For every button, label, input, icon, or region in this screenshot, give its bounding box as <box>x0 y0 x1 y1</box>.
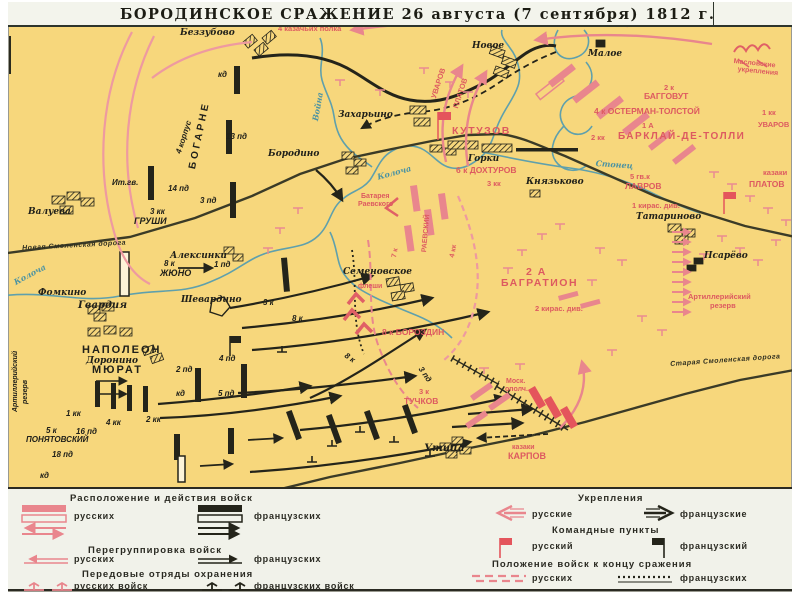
legend-label: французских войск <box>254 581 355 591</box>
map-label: 8 к <box>292 314 303 323</box>
map-label: 1 кк <box>762 109 776 117</box>
legend-label: русских <box>74 554 115 564</box>
title-bar: БОРОДИНСКОЕ СРАЖЕНИЕ 26 августа (7 сентя… <box>8 2 792 27</box>
map-label: Князьково <box>526 177 584 187</box>
legend-label: французские <box>680 509 747 519</box>
map-area: БеззубовоНовоеМалоеЗахарьиноБородиноВалу… <box>8 2 792 487</box>
map-label: 4 кк <box>449 244 458 258</box>
map-label: Малое <box>588 49 622 59</box>
map-label: Татариново <box>636 212 701 222</box>
map-label: 2 пд <box>176 365 193 374</box>
legend-label: русских <box>532 573 573 583</box>
map-label: ЖЮНО <box>160 268 191 278</box>
map-label: 3 пд <box>417 365 434 384</box>
title-divider <box>713 2 714 27</box>
map-label: 7 к <box>391 248 400 258</box>
french-fortification-symbol <box>640 503 680 523</box>
map-label: БАГГОВУТ <box>644 92 688 101</box>
map-label: 14 пд <box>168 184 189 193</box>
map-label: КАРПОВ <box>508 452 546 461</box>
legend-section-title: Укрепления <box>578 493 643 504</box>
french-end-position-symbol <box>616 573 674 585</box>
map-label: УВАРОВ <box>430 67 447 99</box>
map-label: 2 кк <box>591 134 605 142</box>
map-label: Захарьино <box>338 110 393 120</box>
legend: Расположение и действия войск русских фр… <box>8 487 792 591</box>
map-label: 18 пд <box>52 450 73 459</box>
russian-regroup-symbol <box>22 555 72 567</box>
legend-label: французских <box>680 573 747 583</box>
russian-command-post-symbol <box>498 536 516 560</box>
map-label: Раевского <box>358 201 393 208</box>
legend-section-title: Положение войск к концу сражения <box>492 559 692 570</box>
map-label: Фомкино <box>38 288 86 298</box>
map-label: Бородино <box>268 149 319 159</box>
russian-fortification-symbol <box>490 503 530 523</box>
map-label: кд <box>218 70 227 79</box>
map-labels-layer: БеззубовоНовоеМалоеЗахарьиноБородиноВалу… <box>8 2 792 487</box>
map-label: Гвардия <box>78 300 127 311</box>
map-label: 3 к <box>419 388 429 396</box>
map-label: ТУЧКОВ <box>404 397 438 406</box>
french-regroup-symbol <box>196 555 246 567</box>
map-label: Беззубово <box>180 28 235 38</box>
map-label: Утица <box>424 443 464 454</box>
map-label: Валуева <box>28 207 71 217</box>
map-label: ПОНЯТОВСКИЙ <box>26 435 88 444</box>
map-label: 8 к <box>164 259 175 268</box>
french-vanguard-symbol <box>200 580 256 594</box>
map-label: 3 к <box>263 298 274 307</box>
legend-section-title: Передовые отряды охранения <box>82 569 253 580</box>
legend-label: французских <box>254 511 321 521</box>
map-label: ГРУШИ <box>134 216 167 226</box>
map-label: 1 пд <box>214 260 231 269</box>
map-label: Артиллерийский <box>12 351 19 412</box>
map-label: кд <box>176 389 185 398</box>
map-label: 4 к ОСТЕРМАН-ТОЛСТОЙ <box>594 107 700 116</box>
french-command-post-symbol <box>650 536 668 560</box>
map-label: Колоча <box>12 262 47 287</box>
map-label: ЛАВРОВ <box>625 182 662 191</box>
russian-end-position-symbol <box>470 573 528 585</box>
map-label: 1 кк <box>66 409 81 418</box>
map-label: 2 кк <box>146 415 161 424</box>
map-label: 8 к БОРОЗДИН <box>382 328 444 337</box>
map-label: Семеновское <box>343 267 412 277</box>
map-label: флеши <box>358 283 382 290</box>
map-label: Колоча <box>376 163 412 182</box>
map-label: Артиллерийский <box>688 293 751 301</box>
map-label: 3 пд <box>200 196 217 205</box>
map-label: 4 кк <box>106 418 121 427</box>
map-label: резерв <box>22 380 29 404</box>
map-label: Псарёво <box>704 251 748 261</box>
legend-label: русские <box>532 509 573 519</box>
legend-label: русских <box>74 511 115 521</box>
map-label: Война <box>310 92 325 122</box>
map-label: резерв <box>710 302 736 310</box>
map-label: казаки <box>512 444 535 451</box>
map-label: 13 пд <box>226 132 247 141</box>
map-label: ПЛАТОВ <box>452 77 469 109</box>
map-label: 5 к <box>46 426 57 435</box>
map-label: ополч. <box>505 386 528 393</box>
map-label: РАЕВСКИЙ <box>421 214 431 252</box>
map-label: 1 А <box>642 122 654 130</box>
legend-label: французский <box>680 541 748 551</box>
map-label: 2 А <box>526 267 547 278</box>
map-label: 1 кирас. див. <box>632 202 680 210</box>
russian-vanguard-symbol <box>22 580 78 594</box>
map-label: 5 гв.к <box>630 173 650 181</box>
legend-label: русских войск <box>74 581 148 591</box>
legend-label: русский <box>532 541 573 551</box>
map-label: Новое <box>472 41 504 51</box>
map-label: КУТУЗОВ <box>452 126 511 137</box>
map-label: Новая Смоленская дорога <box>22 240 126 252</box>
map-label: ПЛАТОВ <box>749 180 785 189</box>
map-label: 3 кк <box>487 180 501 188</box>
map-label: 16 пд <box>76 427 97 436</box>
legend-section-title: Командные пункты <box>552 525 659 536</box>
french-position-symbol <box>196 503 248 539</box>
map-label: казаки <box>763 169 787 177</box>
map-label: БАГРАТИОН <box>501 278 578 289</box>
map-label: Шевардино <box>181 295 242 305</box>
map-label: БАРКЛАЙ-ДЕ-ТОЛЛИ <box>618 132 745 142</box>
map-label: 4 пд <box>219 354 236 363</box>
map-label: НАПОЛЕОН <box>82 345 162 356</box>
map-label: Батарея <box>361 193 390 200</box>
map-label: Горки <box>468 154 499 164</box>
legend-label: французских <box>254 554 321 564</box>
map-label: Стонец <box>595 158 633 171</box>
map-label: Ит.гв. <box>112 178 138 187</box>
map-label: кд <box>40 471 49 480</box>
map-label: 3 кк <box>150 207 165 216</box>
map-label: УВАРОВ <box>758 121 789 129</box>
map-label: БОГАРНЕ <box>188 101 212 170</box>
map-label: Старая Смоленская дорога <box>670 353 781 368</box>
map-label: МЮРАТ <box>92 365 143 376</box>
map-label: 2 кирас. див. <box>535 305 583 313</box>
map-label: 6 к ДОХТУРОВ <box>456 166 517 175</box>
map-label: 8 к <box>343 351 357 365</box>
page-title: БОРОДИНСКОЕ СРАЖЕНИЕ 26 августа (7 сентя… <box>120 6 715 23</box>
russian-position-symbol <box>20 503 72 539</box>
map-label: Моск. <box>506 378 525 385</box>
map-label: 5 пд <box>218 389 235 398</box>
